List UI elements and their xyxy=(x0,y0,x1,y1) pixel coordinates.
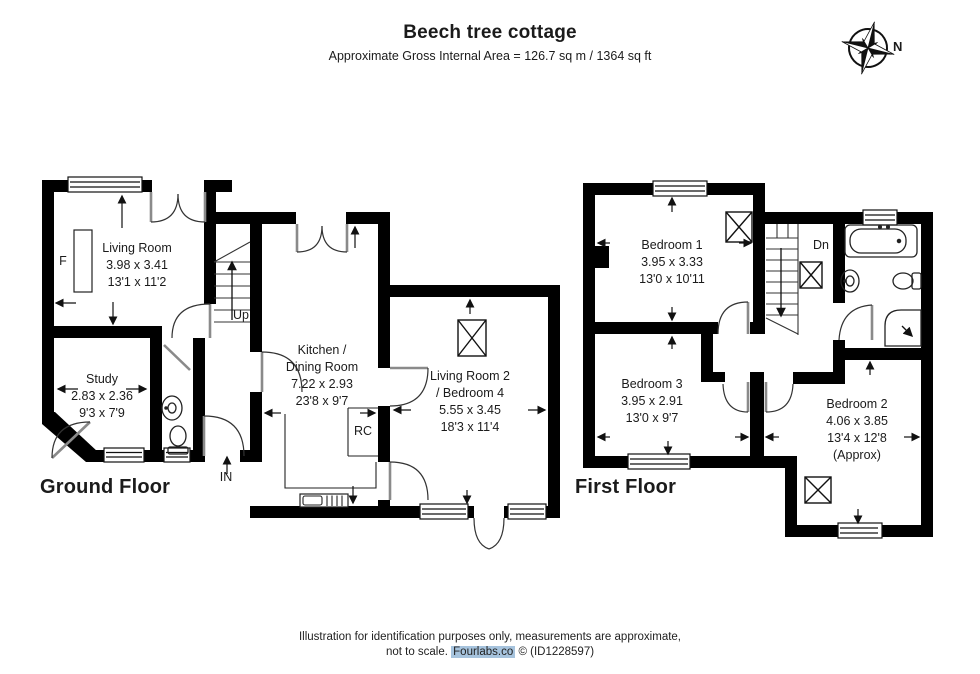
rooflight-icon xyxy=(726,212,752,242)
room-name: Bedroom 1 xyxy=(639,237,705,254)
room-dim-metric: 4.06 x 3.85 xyxy=(826,413,888,430)
disclaimer-line2-prefix: not to scale. xyxy=(386,646,448,658)
window-icon xyxy=(863,210,897,225)
disclaimer-line2: not to scale. Fourlabs.co © (ID1228597) xyxy=(0,646,980,658)
window-icon xyxy=(508,504,546,519)
stairs-up-label: Up xyxy=(233,308,249,322)
room-name: Kitchen / xyxy=(286,342,358,359)
room-dim-note: (Approx) xyxy=(826,447,888,464)
range-cooker-label: RC xyxy=(354,424,372,438)
bathtub-icon xyxy=(845,225,917,257)
room-label-study: Study 2.83 x 2.36 9'3 x 7'9 xyxy=(71,371,133,422)
room-name: Living Room xyxy=(102,240,171,257)
compass-icon xyxy=(835,15,900,80)
room-label-bedroom-2: Bedroom 2 4.06 x 3.85 13'4 x 12'8 (Appro… xyxy=(826,396,888,464)
disclaimer-line1: Illustration for identification purposes… xyxy=(0,631,980,643)
rooflight-icon xyxy=(800,262,822,288)
room-dim-imperial: 13'0 x 9'7 xyxy=(621,410,683,427)
window-icon xyxy=(420,504,468,519)
window-icon xyxy=(104,448,144,462)
room-dim-metric: 7.22 x 2.93 xyxy=(286,376,358,393)
room-name: Bedroom 2 xyxy=(826,396,888,413)
room-label-bedroom-1: Bedroom 1 3.95 x 3.33 13'0 x 10'11 xyxy=(639,237,705,288)
room-label-living-room-2: Living Room 2 / Bedroom 4 5.55 x 3.45 18… xyxy=(430,368,510,436)
room-label-living-room: Living Room 3.98 x 3.41 13'1 x 11'2 xyxy=(102,240,171,291)
fireplace-label: F xyxy=(59,254,67,268)
room-dim-metric: 3.95 x 3.33 xyxy=(639,254,705,271)
entrance-label: IN xyxy=(220,470,233,484)
window-icon xyxy=(653,181,707,196)
room-dim-imperial: 18'3 x 11'4 xyxy=(430,419,510,436)
kitchen-fixtures xyxy=(285,408,378,507)
room-name-line2: / Bedroom 4 xyxy=(430,385,510,402)
room-name: Living Room 2 xyxy=(430,368,510,385)
room-dim-metric: 3.98 x 3.41 xyxy=(102,257,171,274)
basin-icon xyxy=(162,396,182,420)
room-dim-metric: 3.95 x 2.91 xyxy=(621,393,683,410)
floorplan-drawing xyxy=(0,0,980,674)
room-dim-imperial: 13'4 x 12'8 xyxy=(826,430,888,447)
room-name-line2: Dining Room xyxy=(286,359,358,376)
sink-icon xyxy=(300,494,348,507)
shower-icon xyxy=(885,310,921,346)
room-label-bedroom-3: Bedroom 3 3.95 x 2.91 13'0 x 9'7 xyxy=(621,376,683,427)
room-name: Bedroom 3 xyxy=(621,376,683,393)
first-floor-stairs xyxy=(766,224,798,335)
room-dim-metric: 2.83 x 2.36 xyxy=(71,388,133,405)
toilet-icon xyxy=(893,273,921,289)
window-icon xyxy=(68,177,142,192)
first-floor-title: First Floor xyxy=(575,476,676,499)
window-icon xyxy=(628,454,690,469)
floorplan-page: Beech tree cottage Approximate Gross Int… xyxy=(0,0,980,674)
room-dim-imperial: 13'0 x 10'11 xyxy=(639,271,705,288)
room-dim-imperial: 9'3 x 7'9 xyxy=(71,405,133,422)
stairs-down-label: Dn xyxy=(813,238,829,252)
fireplace-icon xyxy=(74,230,92,292)
wc-fixtures xyxy=(162,396,188,454)
basin-icon xyxy=(841,270,859,292)
room-name: Study xyxy=(71,371,133,388)
room-dim-imperial: 13'1 x 11'2 xyxy=(102,274,171,291)
disclaimer-line2-suffix: © (ID1228597) xyxy=(518,646,594,658)
room-dim-metric: 5.55 x 3.45 xyxy=(430,402,510,419)
room-dim-imperial: 23'8 x 9'7 xyxy=(286,393,358,410)
bathroom-fixtures xyxy=(841,225,921,346)
rooflight-icon xyxy=(805,477,831,503)
window-icon xyxy=(838,523,882,538)
brand-link[interactable]: Fourlabs.co xyxy=(451,646,515,658)
rooflight-icon xyxy=(458,320,486,356)
ground-floor-title: Ground Floor xyxy=(40,476,170,499)
room-label-kitchen-dining: Kitchen / Dining Room 7.22 x 2.93 23'8 x… xyxy=(286,342,358,410)
